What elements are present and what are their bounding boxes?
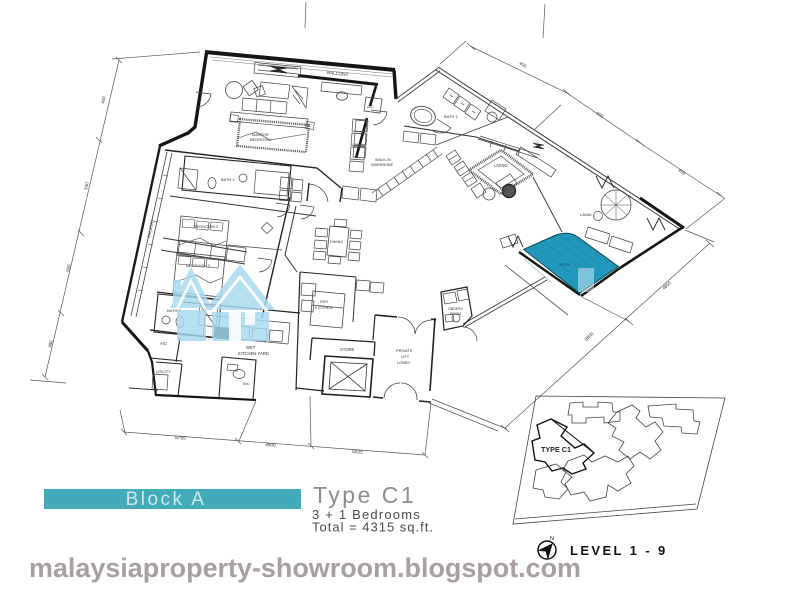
svg-text:N: N: [550, 536, 554, 542]
svg-text:LIVING: LIVING: [494, 163, 508, 168]
svg-text:LEVEL 1 - 9: LEVEL 1 - 9: [570, 543, 668, 558]
svg-text:BATH 2: BATH 2: [221, 177, 235, 182]
svg-text:Block A: Block A: [126, 489, 207, 510]
svg-text:WARDROBE: WARDROBE: [371, 163, 394, 167]
svg-text:Total = 4315 sq.ft.: Total = 4315 sq.ft.: [312, 520, 434, 535]
svg-text:LANAI: LANAI: [580, 212, 592, 217]
svg-text:WET: WET: [246, 345, 256, 350]
svg-text:TYPE C1: TYPE C1: [541, 445, 571, 454]
svg-text:WC: WC: [243, 381, 250, 386]
svg-text:DRY: DRY: [320, 299, 329, 304]
svg-text:STORE: STORE: [340, 347, 355, 352]
svg-text:5755: 5755: [175, 435, 186, 442]
svg-text:UTILITY: UTILITY: [156, 369, 171, 374]
svg-text:BEDROOM 2: BEDROOM 2: [194, 224, 219, 229]
svg-text:OBSERV: OBSERV: [448, 307, 464, 311]
svg-text:BEDROOM: BEDROOM: [250, 137, 271, 142]
svg-text:malaysiaproperty-showroom.blog: malaysiaproperty-showroom.blogspot.com: [29, 553, 581, 583]
svg-text:3900: 3900: [265, 442, 276, 449]
svg-text:BATH 1: BATH 1: [444, 114, 458, 119]
svg-text:A/C: A/C: [367, 104, 374, 109]
svg-text:A/C: A/C: [160, 341, 167, 346]
svg-text:KITCHEN YARD: KITCHEN YARD: [238, 351, 269, 356]
svg-text:KITCHEN: KITCHEN: [315, 305, 333, 310]
svg-text:PRIVATE: PRIVATE: [396, 348, 413, 353]
svg-text:DINING: DINING: [330, 240, 343, 244]
svg-text:LOBBY: LOBBY: [397, 360, 411, 365]
svg-text:5025: 5025: [352, 449, 363, 456]
svg-text:POOL: POOL: [560, 263, 570, 267]
svg-text:WALK-IN: WALK-IN: [375, 158, 391, 162]
svg-text:BEDROOM 3: BEDROOM 3: [186, 263, 211, 268]
svg-text:Type C1: Type C1: [313, 482, 416, 508]
svg-text:LIFT: LIFT: [401, 354, 410, 359]
